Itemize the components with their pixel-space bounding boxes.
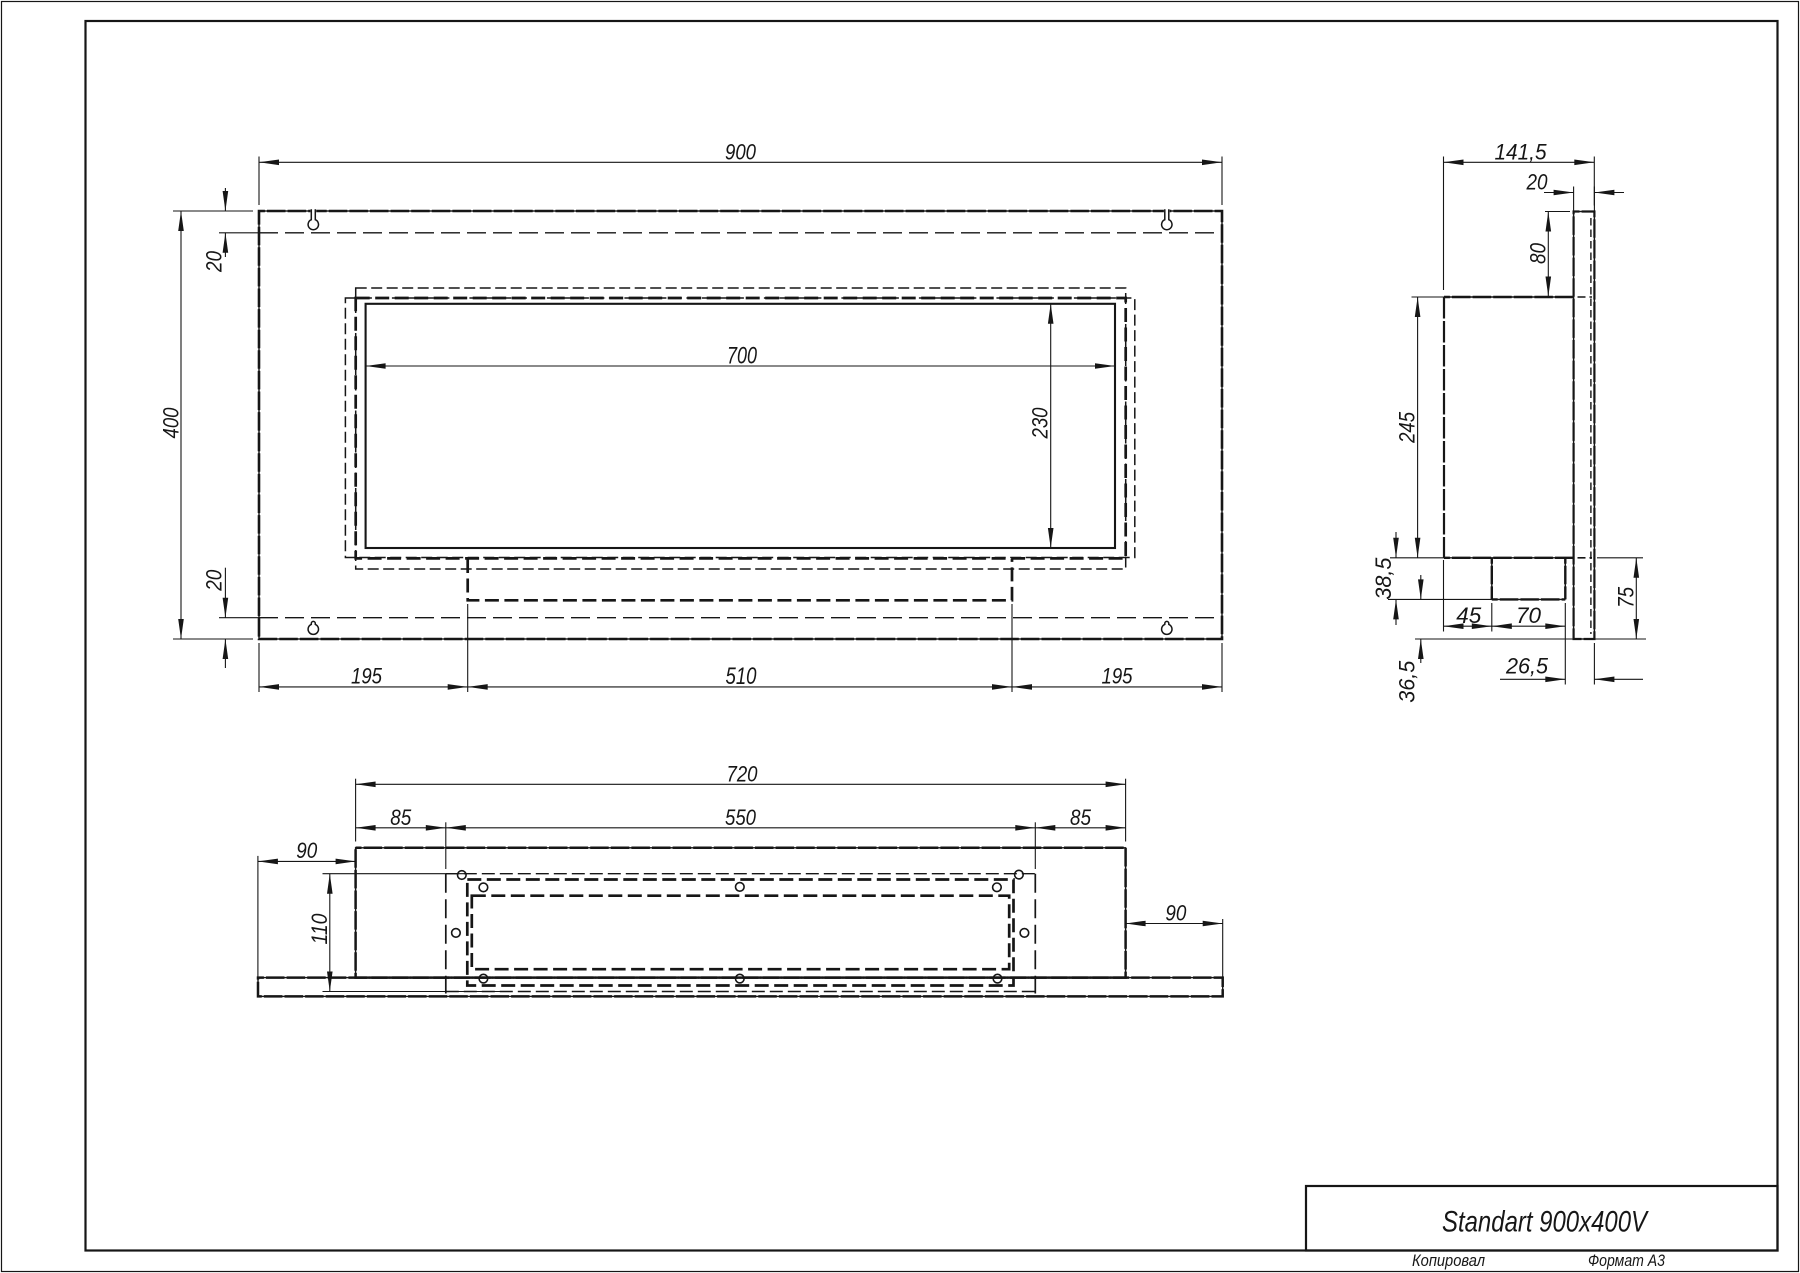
- svg-text:85: 85: [1070, 805, 1091, 830]
- svg-text:90: 90: [296, 838, 317, 863]
- svg-text:230: 230: [1028, 407, 1053, 439]
- svg-text:110: 110: [307, 913, 332, 944]
- svg-text:400: 400: [158, 407, 183, 438]
- svg-text:20: 20: [202, 569, 227, 591]
- svg-text:195: 195: [1102, 664, 1133, 689]
- svg-text:141,5: 141,5: [1495, 139, 1547, 164]
- svg-text:85: 85: [390, 805, 411, 830]
- svg-text:195: 195: [351, 664, 382, 689]
- svg-text:36,5: 36,5: [1394, 660, 1419, 702]
- svg-text:720: 720: [727, 761, 758, 786]
- svg-text:550: 550: [725, 805, 756, 830]
- svg-text:38,5: 38,5: [1371, 557, 1396, 599]
- svg-text:900: 900: [725, 139, 756, 164]
- svg-text:Standart 900x400V: Standart 900x400V: [1442, 1206, 1649, 1239]
- svg-text:20: 20: [202, 251, 227, 273]
- svg-text:80: 80: [1525, 243, 1550, 264]
- svg-text:90: 90: [1165, 900, 1186, 925]
- svg-text:45: 45: [1456, 603, 1481, 628]
- svg-text:510: 510: [726, 663, 758, 690]
- svg-text:700: 700: [727, 343, 757, 370]
- svg-text:245: 245: [1395, 412, 1420, 444]
- svg-text:Формат А3: Формат А3: [1588, 1252, 1666, 1270]
- svg-text:Копировал: Копировал: [1412, 1252, 1485, 1270]
- svg-text:26,5: 26,5: [1505, 653, 1548, 678]
- svg-text:20: 20: [1526, 169, 1548, 194]
- svg-text:75: 75: [1613, 586, 1638, 607]
- svg-text:70: 70: [1516, 603, 1541, 628]
